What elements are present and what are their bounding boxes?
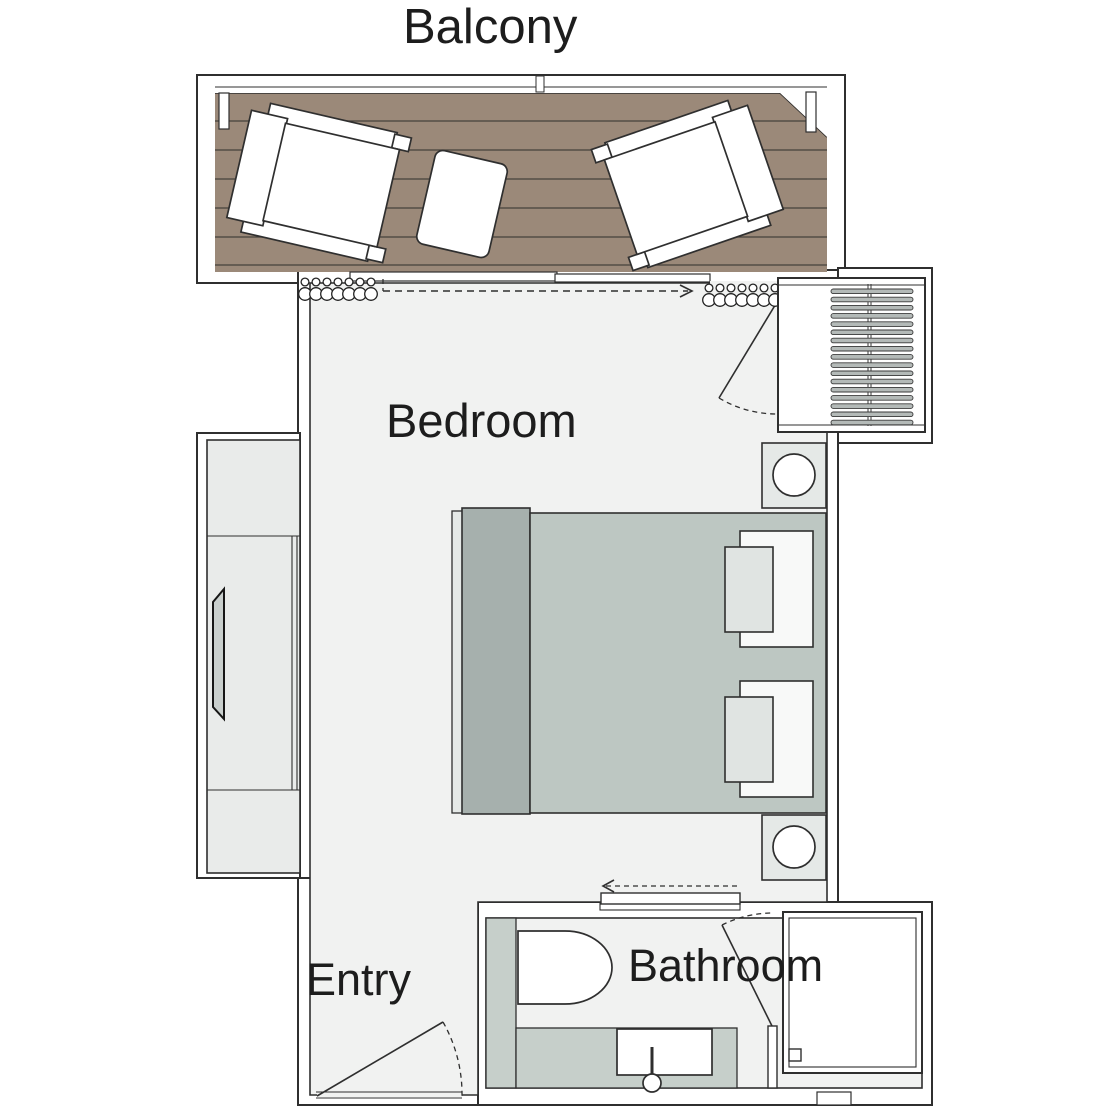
wardrobe — [778, 278, 925, 432]
nightstand-bottom — [762, 815, 826, 880]
entry-label: Entry — [306, 956, 411, 1003]
railing-divider — [536, 76, 544, 92]
pillow-top-inner — [725, 547, 773, 632]
balcony-label: Balcony — [403, 2, 577, 53]
vanity-side-counter — [486, 918, 516, 1088]
balcony-area — [215, 76, 827, 272]
bathroom-label: Bathroom — [628, 942, 823, 989]
toilet-icon — [518, 931, 612, 1004]
floorplan-drawing — [0, 0, 1116, 1118]
bed-foot-runner — [462, 508, 530, 814]
hanger-bars — [831, 289, 913, 425]
wall-step-notch — [817, 1092, 851, 1105]
shower-partition-wall — [768, 1026, 777, 1088]
tv-screen — [213, 589, 224, 719]
tv-console — [207, 440, 300, 873]
balcony-pillar-left — [219, 93, 229, 129]
sliding-window-band — [555, 274, 710, 282]
nightstand-top — [762, 443, 826, 508]
shower-tray — [783, 912, 922, 1073]
balcony-pillar-right — [806, 92, 816, 132]
bed — [452, 508, 826, 814]
lamp-icon — [773, 826, 815, 868]
stateroom-floorplan: Balcony Bedroom Entry Bathroom — [0, 0, 1116, 1118]
shower-drain-icon — [789, 1049, 801, 1061]
window-band — [350, 272, 557, 281]
sink-basin — [617, 1029, 712, 1075]
pillow-bottom-inner — [725, 697, 773, 782]
sliding-door-panel — [601, 893, 740, 904]
bedroom-label: Bedroom — [386, 396, 577, 445]
lamp-icon — [773, 454, 815, 496]
